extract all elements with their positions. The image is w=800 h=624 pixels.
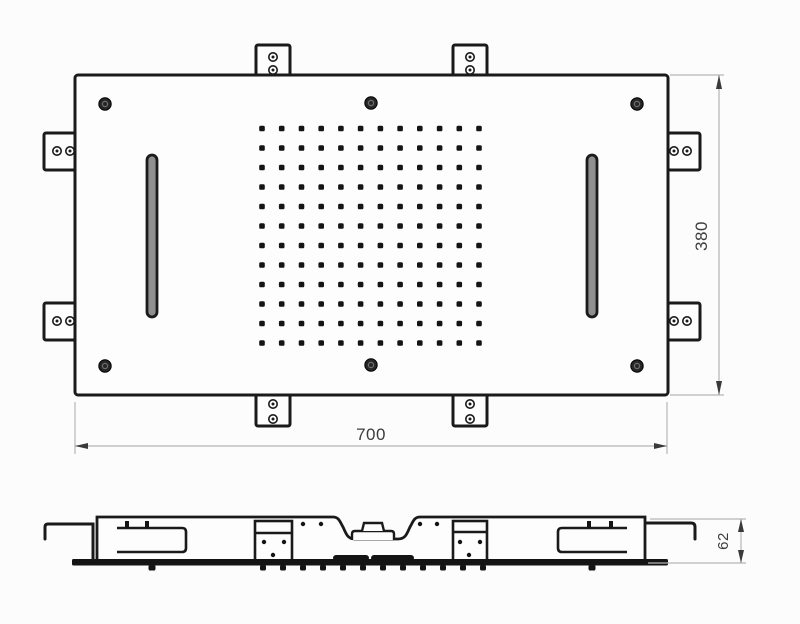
nozzle-tick — [320, 565, 326, 571]
spray-hole — [259, 321, 265, 327]
spray-hole — [259, 126, 265, 132]
nozzle-tick — [260, 565, 266, 571]
spray-hole — [397, 145, 403, 151]
spray-hole — [417, 340, 423, 346]
screw — [99, 360, 111, 372]
depth-dim-label: 62 — [715, 532, 732, 550]
spray-hole — [378, 282, 384, 288]
spray-hole — [338, 126, 344, 132]
slot-nozzle-tick — [149, 565, 156, 571]
spray-hole — [437, 223, 443, 229]
spray-hole — [378, 223, 384, 229]
spray-hole — [397, 340, 403, 346]
spray-hole — [417, 282, 423, 288]
spray-hole — [259, 301, 265, 307]
spray-hole — [279, 204, 285, 210]
arrow-up-icon — [716, 75, 722, 89]
spray-hole — [397, 126, 403, 132]
spray-hole — [378, 126, 384, 132]
spray-hole — [437, 243, 443, 249]
spray-hole — [259, 165, 265, 171]
spray-hole — [279, 321, 285, 327]
spray-hole — [476, 204, 482, 210]
spray-hole — [338, 223, 344, 229]
right-slot — [587, 155, 597, 317]
spray-hole — [279, 126, 285, 132]
spray-hole — [476, 301, 482, 307]
spray-hole — [437, 321, 443, 327]
arrow-down-icon — [716, 381, 722, 395]
spray-hole — [279, 223, 285, 229]
nozzle-tick — [380, 565, 386, 571]
drawing: 700 380 — [0, 0, 800, 624]
spray-hole — [457, 223, 463, 229]
left-slot — [147, 155, 157, 317]
spray-hole — [318, 340, 324, 346]
top-view: 700 380 — [44, 45, 724, 454]
spray-hole — [299, 262, 305, 268]
spray-hole — [318, 184, 324, 190]
spray-hole — [259, 223, 265, 229]
right-hook-bracket — [646, 523, 695, 539]
spray-hole — [397, 282, 403, 288]
nozzle-tick — [300, 565, 306, 571]
spray-hole — [318, 165, 324, 171]
spray-hole — [318, 204, 324, 210]
mounting-tab — [256, 45, 290, 76]
spray-hole — [338, 145, 344, 151]
spray-hole — [417, 243, 423, 249]
nozzle-tick — [400, 565, 406, 571]
spray-hole — [259, 184, 265, 190]
spray-hole — [358, 145, 364, 151]
spray-hole — [338, 262, 344, 268]
spray-hole — [417, 321, 423, 327]
screw-dot — [435, 522, 439, 526]
spray-hole — [358, 204, 364, 210]
spray-hole — [457, 340, 463, 346]
mounting-tab — [256, 394, 290, 426]
spray-hole — [299, 126, 305, 132]
spray-hole — [299, 184, 305, 190]
spray-hole — [358, 321, 364, 327]
spray-hole — [457, 243, 463, 249]
spray-hole — [318, 282, 324, 288]
spray-hole — [318, 145, 324, 151]
spray-hole — [358, 184, 364, 190]
arrow-right-icon — [654, 443, 667, 449]
spray-hole — [358, 262, 364, 268]
spray-hole — [279, 301, 285, 307]
spray-hole — [397, 243, 403, 249]
left-hook-bracket — [45, 524, 93, 559]
width-dimension: 700 — [75, 402, 667, 454]
spray-hole — [417, 301, 423, 307]
spray-hole — [378, 184, 384, 190]
spray-hole — [437, 340, 443, 346]
spray-hole — [358, 301, 364, 307]
spray-hole — [338, 340, 344, 346]
nozzle-tick — [360, 565, 366, 571]
spray-hole — [417, 145, 423, 151]
spray-hole — [358, 282, 364, 288]
bottom-plate — [72, 559, 668, 566]
spray-hole — [279, 184, 285, 190]
mounting-tab — [668, 303, 700, 340]
spray-hole — [378, 301, 384, 307]
spray-hole — [378, 204, 384, 210]
spray-hole — [279, 262, 285, 268]
mounting-tab — [44, 303, 76, 340]
spray-hole — [476, 145, 482, 151]
spray-hole — [299, 145, 305, 151]
spray-hole — [338, 165, 344, 171]
spray-hole — [338, 282, 344, 288]
screw — [99, 98, 111, 110]
nozzle-tick — [340, 565, 346, 571]
nozzle-tick — [280, 565, 286, 571]
spray-hole — [318, 262, 324, 268]
spray-hole — [378, 243, 384, 249]
nozzle-tick — [460, 565, 466, 571]
screw-dot — [319, 522, 323, 526]
spray-hole — [299, 321, 305, 327]
spray-hole — [397, 321, 403, 327]
spray-hole — [397, 184, 403, 190]
spray-hole — [397, 262, 403, 268]
spray-hole — [437, 165, 443, 171]
screw — [631, 360, 643, 372]
spray-hole — [358, 223, 364, 229]
pin — [145, 521, 149, 528]
spray-hole — [457, 126, 463, 132]
side-view: 62 — [45, 517, 746, 571]
spray-hole — [476, 184, 482, 190]
spray-hole — [437, 262, 443, 268]
nozzle-ticks — [149, 565, 596, 571]
spray-hole — [338, 243, 344, 249]
spray-hole — [397, 301, 403, 307]
width-dim-label: 700 — [356, 425, 386, 444]
spray-hole — [437, 184, 443, 190]
spray-hole — [299, 282, 305, 288]
screw — [365, 359, 377, 371]
spray-hole — [476, 340, 482, 346]
mounting-tab — [668, 133, 700, 170]
spray-hole — [476, 243, 482, 249]
spray-hole — [358, 126, 364, 132]
spray-hole — [259, 282, 265, 288]
nozzle-tick — [420, 565, 426, 571]
spray-hole — [457, 145, 463, 151]
height-dimension: 380 — [670, 75, 724, 395]
mounting-tab — [453, 394, 487, 426]
pin — [609, 521, 613, 528]
spray-hole — [417, 204, 423, 210]
depth-dimension: 62 — [648, 519, 746, 563]
spray-hole — [299, 243, 305, 249]
spray-hole — [279, 165, 285, 171]
spray-hole — [437, 301, 443, 307]
spray-hole — [299, 301, 305, 307]
spray-hole — [279, 340, 285, 346]
spray-hole — [378, 340, 384, 346]
spray-hole — [378, 321, 384, 327]
spray-hole — [378, 165, 384, 171]
screw-dot — [418, 522, 422, 526]
spray-hole — [437, 126, 443, 132]
spray-hole — [437, 145, 443, 151]
technical-drawing-canvas: 700 380 — [0, 0, 800, 624]
screw — [631, 98, 643, 110]
spray-hole — [358, 340, 364, 346]
spray-hole — [457, 262, 463, 268]
spray-hole — [259, 204, 265, 210]
spray-hole — [457, 282, 463, 288]
spray-hole — [476, 223, 482, 229]
spray-hole — [338, 184, 344, 190]
mounting-tab — [44, 133, 76, 170]
spray-hole — [299, 223, 305, 229]
spray-hole — [358, 243, 364, 249]
spray-hole — [259, 145, 265, 151]
spray-hole — [457, 184, 463, 190]
spray-hole — [457, 165, 463, 171]
spray-hole — [397, 223, 403, 229]
spray-hole — [457, 301, 463, 307]
spray-hole — [338, 321, 344, 327]
spray-hole — [338, 301, 344, 307]
mounting-tab — [453, 45, 487, 76]
spray-hole — [259, 262, 265, 268]
spray-hole — [417, 223, 423, 229]
inlet-connector — [352, 523, 394, 540]
spray-hole — [417, 184, 423, 190]
spray-hole — [318, 126, 324, 132]
height-dim-label: 380 — [692, 221, 711, 251]
spray-hole — [318, 321, 324, 327]
nozzle-tick — [440, 565, 446, 571]
pin — [587, 521, 591, 528]
spray-hole — [457, 204, 463, 210]
spray-hole — [259, 243, 265, 249]
nozzle-tick — [480, 565, 486, 571]
spray-hole — [437, 282, 443, 288]
spray-hole — [358, 165, 364, 171]
spray-hole — [417, 126, 423, 132]
arrow-up-icon — [738, 519, 744, 532]
spray-hole — [397, 165, 403, 171]
spray-hole — [397, 204, 403, 210]
spray-hole — [279, 145, 285, 151]
screw-dot — [301, 522, 305, 526]
spray-hole — [299, 165, 305, 171]
spray-hole — [279, 243, 285, 249]
spray-hole — [318, 223, 324, 229]
spray-hole — [476, 165, 482, 171]
arrow-down-icon — [738, 550, 744, 563]
spray-hole — [476, 321, 482, 327]
slot-nozzle-tick — [589, 565, 596, 571]
spray-hole — [476, 126, 482, 132]
spray-hole — [476, 282, 482, 288]
spray-hole — [437, 204, 443, 210]
spray-hole — [378, 262, 384, 268]
spray-hole — [476, 262, 482, 268]
spray-hole — [318, 243, 324, 249]
spray-hole — [417, 262, 423, 268]
spray-hole — [378, 145, 384, 151]
spray-hole — [457, 321, 463, 327]
spray-hole — [259, 340, 265, 346]
screw — [365, 97, 377, 109]
pin — [125, 521, 129, 528]
spray-hole — [299, 340, 305, 346]
spray-hole — [318, 301, 324, 307]
spray-hole — [417, 165, 423, 171]
panel-outline — [75, 75, 668, 395]
arrow-left-icon — [75, 443, 88, 449]
spray-hole — [279, 282, 285, 288]
spray-hole — [299, 204, 305, 210]
spray-hole — [338, 204, 344, 210]
